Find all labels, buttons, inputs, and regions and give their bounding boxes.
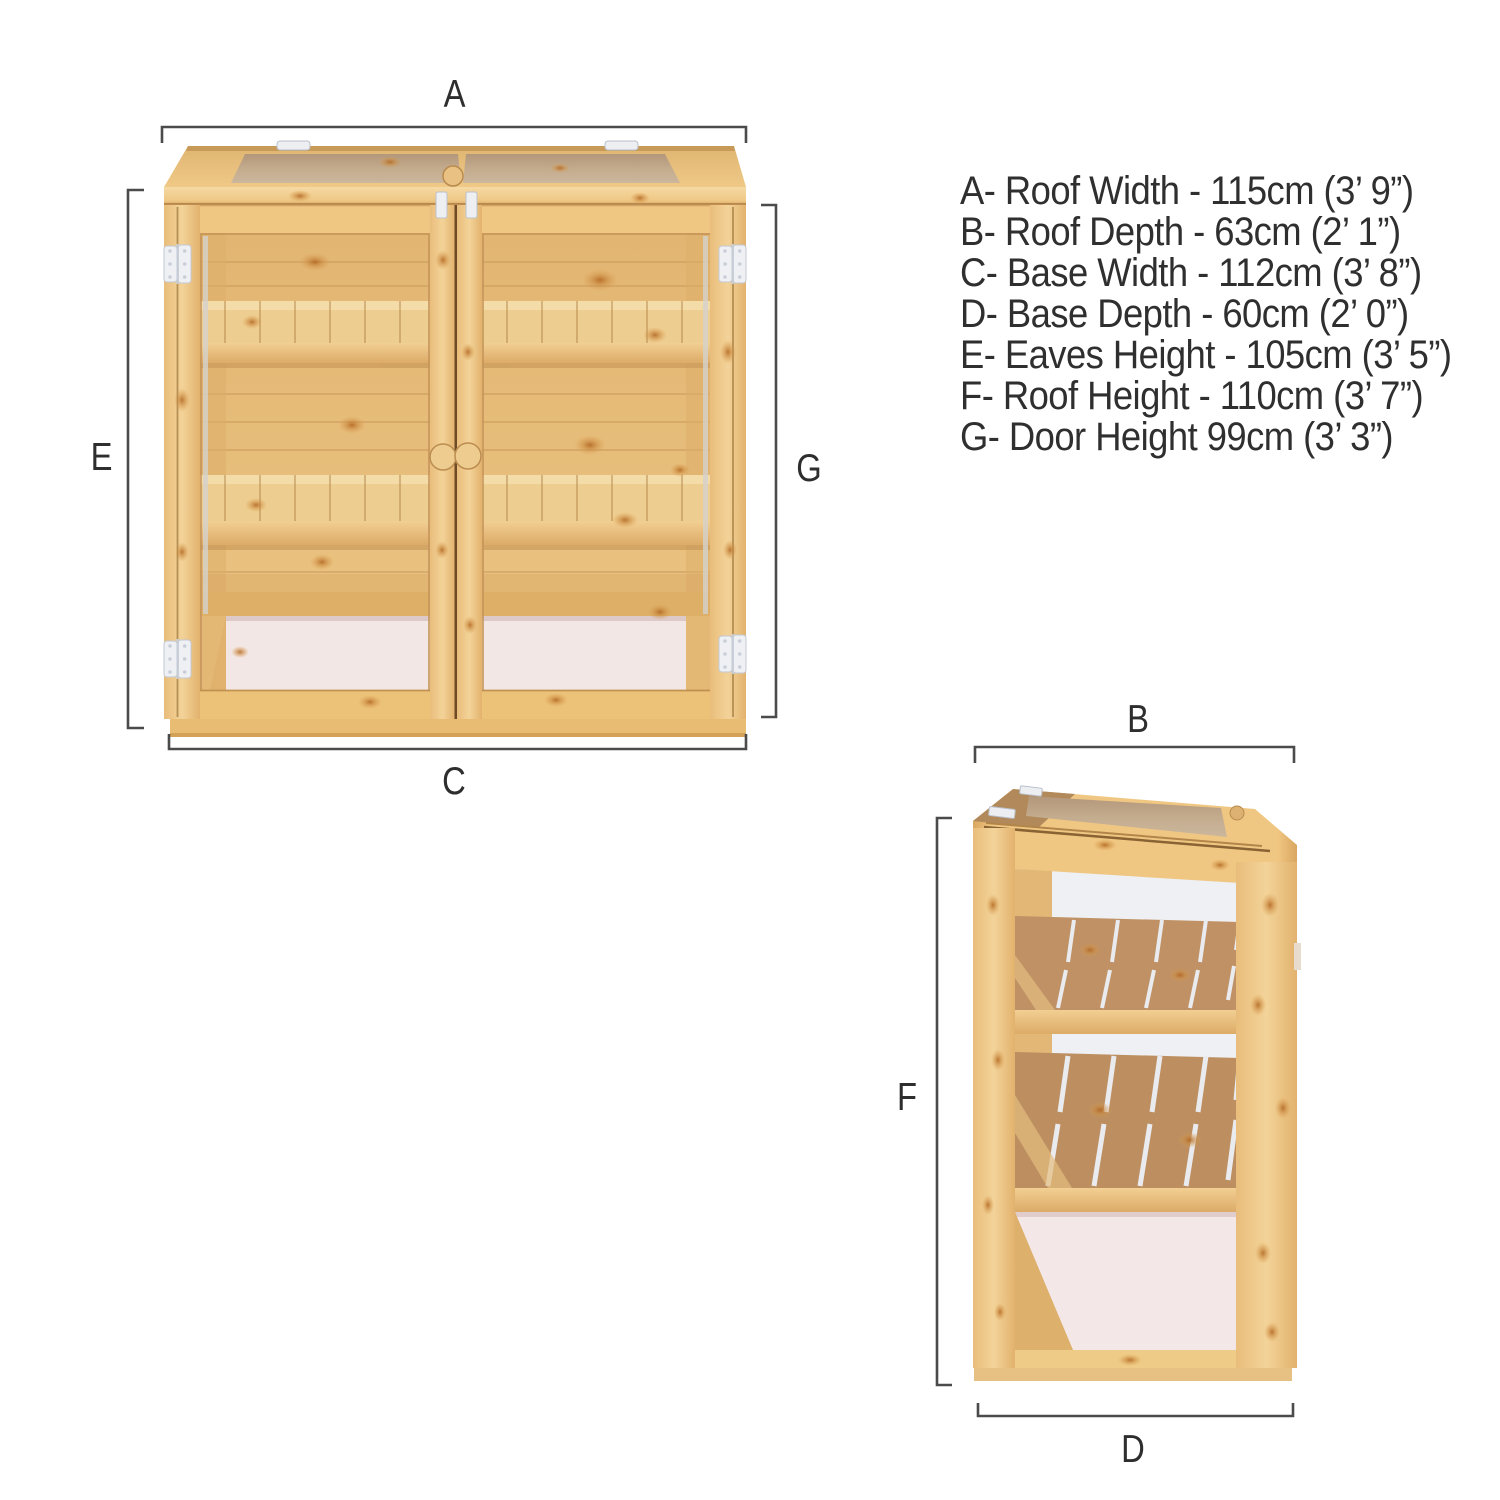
svg-text:G: G (796, 445, 821, 489)
svg-text:D: D (1121, 1426, 1145, 1470)
svg-text:B: B (1127, 696, 1149, 740)
svg-text:F: F (897, 1074, 917, 1118)
svg-text:C: C (442, 758, 466, 802)
svg-text:A: A (444, 71, 466, 115)
svg-text:E: E (91, 434, 113, 478)
